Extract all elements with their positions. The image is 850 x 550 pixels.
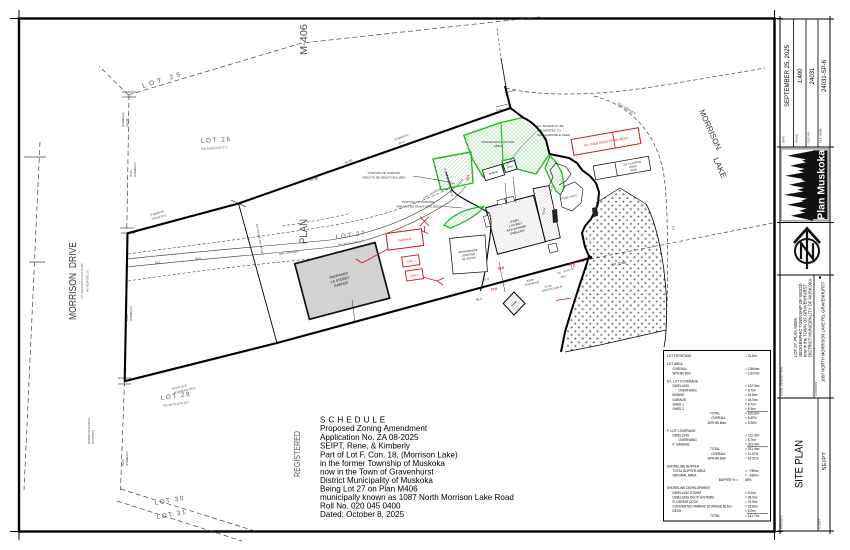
- svg-text:= 185.8m²: = 185.8m²: [745, 412, 759, 416]
- svg-text:EX. BUNKIE TO BE: EX. BUNKIE TO BE: [537, 124, 564, 128]
- svg-text:OVERHANG: OVERHANG: [679, 389, 698, 393]
- svg-text:= 2,007m²: = 2,007m²: [745, 371, 759, 375]
- svg-text:DWELLING: DWELLING: [673, 433, 690, 437]
- svg-text:34.0: 34.0: [195, 256, 202, 261]
- svg-text:Plan Muskoka: Plan Muskoka: [816, 150, 828, 220]
- svg-text:(P1&MEAS): (P1&MEAS): [125, 451, 129, 466]
- svg-text:= 6.2m²: = 6.2m²: [745, 509, 756, 513]
- svg-text:= 122.3m²: = 122.3m²: [745, 433, 759, 437]
- svg-text:TOTAL: TOTAL: [710, 447, 720, 451]
- svg-text:1:400: 1:400: [798, 68, 804, 84]
- svg-text:TOTAL: TOTAL: [710, 514, 720, 518]
- svg-text:DATE:: DATE:: [782, 135, 786, 143]
- svg-text:24031: 24031: [810, 67, 816, 84]
- svg-text:TOTAL BUFFER AREA: TOTAL BUFFER AREA: [673, 469, 707, 473]
- svg-text:EX. LOT COVERAGE: EX. LOT COVERAGE: [667, 379, 698, 383]
- svg-text:= 6.49%: = 6.49%: [745, 416, 757, 420]
- svg-text:NON-HABITABLE SHED: NON-HABITABLE SHED: [537, 133, 571, 137]
- svg-text:(BY REGISTERED PLAN M-406): (BY REGISTERED PLAN M-406): [81, 263, 84, 298]
- svg-text:= 38.0m²: = 38.0m²: [745, 495, 758, 499]
- svg-text:WITHIN 60m: WITHIN 60m: [708, 456, 727, 460]
- svg-text:Dated: October 8, 2025: Dated: October 8, 2025: [320, 510, 405, 519]
- svg-text:SHED 2: SHED 2: [673, 407, 685, 411]
- svg-text:= 11.57%: = 11.57%: [745, 452, 758, 456]
- svg-text:DISTRICT MUNICIPALITY OF MUSKO: DISTRICT MUNICIPALITY OF MUSKOKA: [807, 278, 812, 357]
- svg-text:AREA TO BE RENATURALIZED: AREA TO BE RENATURALIZED: [396, 204, 440, 208]
- svg-text:83.29: 83.29: [121, 459, 125, 466]
- svg-text:35.48: 35.48: [125, 314, 129, 321]
- svg-text:P. GARAGE: P. GARAGE: [673, 443, 690, 447]
- svg-text:= 8.7m²: = 8.7m²: [745, 402, 756, 406]
- svg-text:DWELLING DECK w/STAIRS: DWELLING DECK w/STAIRS: [673, 495, 715, 499]
- svg-text:OVERALL: OVERALL: [711, 416, 726, 420]
- svg-text:FILE NO:: FILE NO:: [807, 131, 811, 143]
- svg-text:= 16.51%: = 16.51%: [745, 456, 759, 460]
- svg-text:= 15.8m²: = 15.8m²: [745, 393, 758, 397]
- svg-text:PLAN: PLAN: [298, 219, 310, 244]
- svg-text:GARAGE: GARAGE: [673, 398, 687, 402]
- svg-text:Proposed Zoning Amendment: Proposed Zoning Amendment: [320, 424, 428, 433]
- svg-text:= 5.7m²: = 5.7m²: [745, 438, 756, 442]
- svg-text:PROJECT:: PROJECT:: [780, 515, 784, 529]
- svg-text:LOT AREA: LOT AREA: [667, 362, 683, 366]
- svg-text:= 24.0m²: = 24.0m²: [745, 398, 758, 402]
- svg-text:OVERALL: OVERALL: [673, 367, 688, 371]
- svg-text:WITHIN 60m: WITHIN 60m: [708, 421, 727, 425]
- svg-text:= 75.5m²: = 75.5m²: [745, 500, 758, 504]
- svg-text:CONVERTED MARINE STORAGE BLDG: CONVERTED MARINE STORAGE BLDG: [673, 505, 733, 509]
- svg-text:PIN 48039-0352 (LT): PIN 48039-0352 (LT): [87, 270, 90, 292]
- svg-text:= ~339m²: = ~339m²: [745, 474, 759, 478]
- svg-text:= 331.4m²: = 331.4m²: [745, 447, 759, 451]
- svg-text:SCALE:: SCALE:: [795, 133, 799, 143]
- svg-text:= 122.3m²: = 122.3m²: [745, 384, 759, 388]
- svg-text:TOTAL: TOTAL: [710, 412, 720, 416]
- svg-text:(SHOWN REVERSED): (SHOWN REVERSED): [88, 418, 91, 444]
- svg-text:(P1&MEAS): (P1&MEAS): [133, 162, 137, 177]
- svg-text:CONVERTED TO: CONVERTED TO: [537, 128, 561, 132]
- svg-text:45%: 45%: [745, 478, 752, 482]
- svg-text:AREA TO BE RENATURALIZED: AREA TO BE RENATURALIZED: [362, 175, 406, 179]
- svg-text:2.18: 2.18: [496, 108, 502, 112]
- svg-text:= 9.26%: = 9.26%: [745, 421, 757, 425]
- svg-text:FLOATING DOCK: FLOATING DOCK: [673, 500, 700, 504]
- svg-text:= 5.2m²: = 5.2m²: [745, 491, 756, 495]
- svg-text:DWELLING STAIRS: DWELLING STAIRS: [673, 491, 702, 495]
- svg-text:BUNKIE: BUNKIE: [673, 393, 685, 397]
- svg-text:DECK: DECK: [673, 509, 683, 513]
- svg-text:= ~739m²: = ~739m²: [745, 469, 759, 473]
- svg-text:(P1&MEAS): (P1&MEAS): [129, 306, 133, 321]
- svg-text:SHED 1: SHED 1: [673, 402, 685, 406]
- svg-text:FILE NAME:: FILE NAME:: [819, 127, 823, 143]
- svg-text:S C H E D U L E: S C H E D U L E: [320, 415, 386, 424]
- svg-text:LEGAL DESCRIPTION:: LEGAL DESCRIPTION:: [780, 366, 784, 396]
- svg-text:= 31.8m: = 31.8m: [745, 354, 757, 358]
- svg-text:SEPTEMBER 25, 2025: SEPTEMBER 25, 2025: [785, 44, 791, 107]
- svg-text:SITE PLAN: SITE PLAN: [794, 440, 806, 488]
- svg-text:= 203.4m²: = 203.4m²: [745, 443, 759, 447]
- svg-text:25.43: 25.43: [129, 170, 133, 177]
- svg-text:WITHIN 60m: WITHIN 60m: [673, 371, 692, 375]
- svg-text:SHORELINE DEVELOPMENT: SHORELINE DEVELOPMENT: [667, 486, 710, 490]
- svg-text:54.1: 54.1: [155, 260, 162, 265]
- svg-text:SEIPT: SEIPT: [822, 452, 828, 471]
- svg-text:(P1&MEAS): (P1&MEAS): [121, 112, 125, 127]
- svg-text:142.30: 142.30: [125, 118, 129, 127]
- svg-text:PORTION OF PARKING: PORTION OF PARKING: [402, 200, 435, 204]
- svg-text:1087 NORTH MORRISON LAKE RD, G: 1087 NORTH MORRISON LAKE RD, GRAVENHURST: [821, 281, 826, 382]
- svg-text:= 15.8m²: = 15.8m²: [745, 505, 758, 509]
- svg-text:REGISTERED: REGISTERED: [292, 431, 302, 477]
- svg-text:= 9.3m²: = 9.3m²: [745, 407, 756, 411]
- svg-text:SHORELINE BUFFER: SHORELINE BUFFER: [667, 464, 700, 468]
- svg-text:= 141.7m²: = 141.7m²: [745, 514, 759, 518]
- svg-text:PORTION OF PARKING: PORTION OF PARKING: [368, 171, 401, 175]
- svg-text:24031-SP-6: 24031-SP-6: [822, 59, 828, 92]
- svg-text:P. LOT COVERAGE: P. LOT COVERAGE: [667, 429, 696, 433]
- svg-text:OVERHANG: OVERHANG: [679, 438, 698, 442]
- svg-text:LOCATION:: LOCATION:: [814, 381, 818, 396]
- svg-text:CLIENT:: CLIENT:: [818, 518, 822, 529]
- svg-text:OVERALL: OVERALL: [711, 452, 726, 456]
- svg-text:BUFFER % =: BUFFER % =: [719, 478, 738, 482]
- svg-text:LOT FRONTAGE: LOT FRONTAGE: [667, 354, 692, 358]
- svg-text:= 2,864m²: = 2,864m²: [745, 367, 759, 371]
- svg-text:N73°29'15"E: N73°29'15"E: [92, 429, 95, 444]
- svg-text:DWELLING: DWELLING: [673, 384, 690, 388]
- svg-text:= 5.7m²: = 5.7m²: [745, 389, 756, 393]
- svg-text:MORRISON DRIVE: MORRISON DRIVE: [68, 242, 79, 320]
- svg-text:AREA: AREA: [494, 144, 502, 148]
- svg-text:M-406: M-406: [299, 24, 310, 55]
- svg-text:NATURAL AREA: NATURAL AREA: [673, 474, 698, 478]
